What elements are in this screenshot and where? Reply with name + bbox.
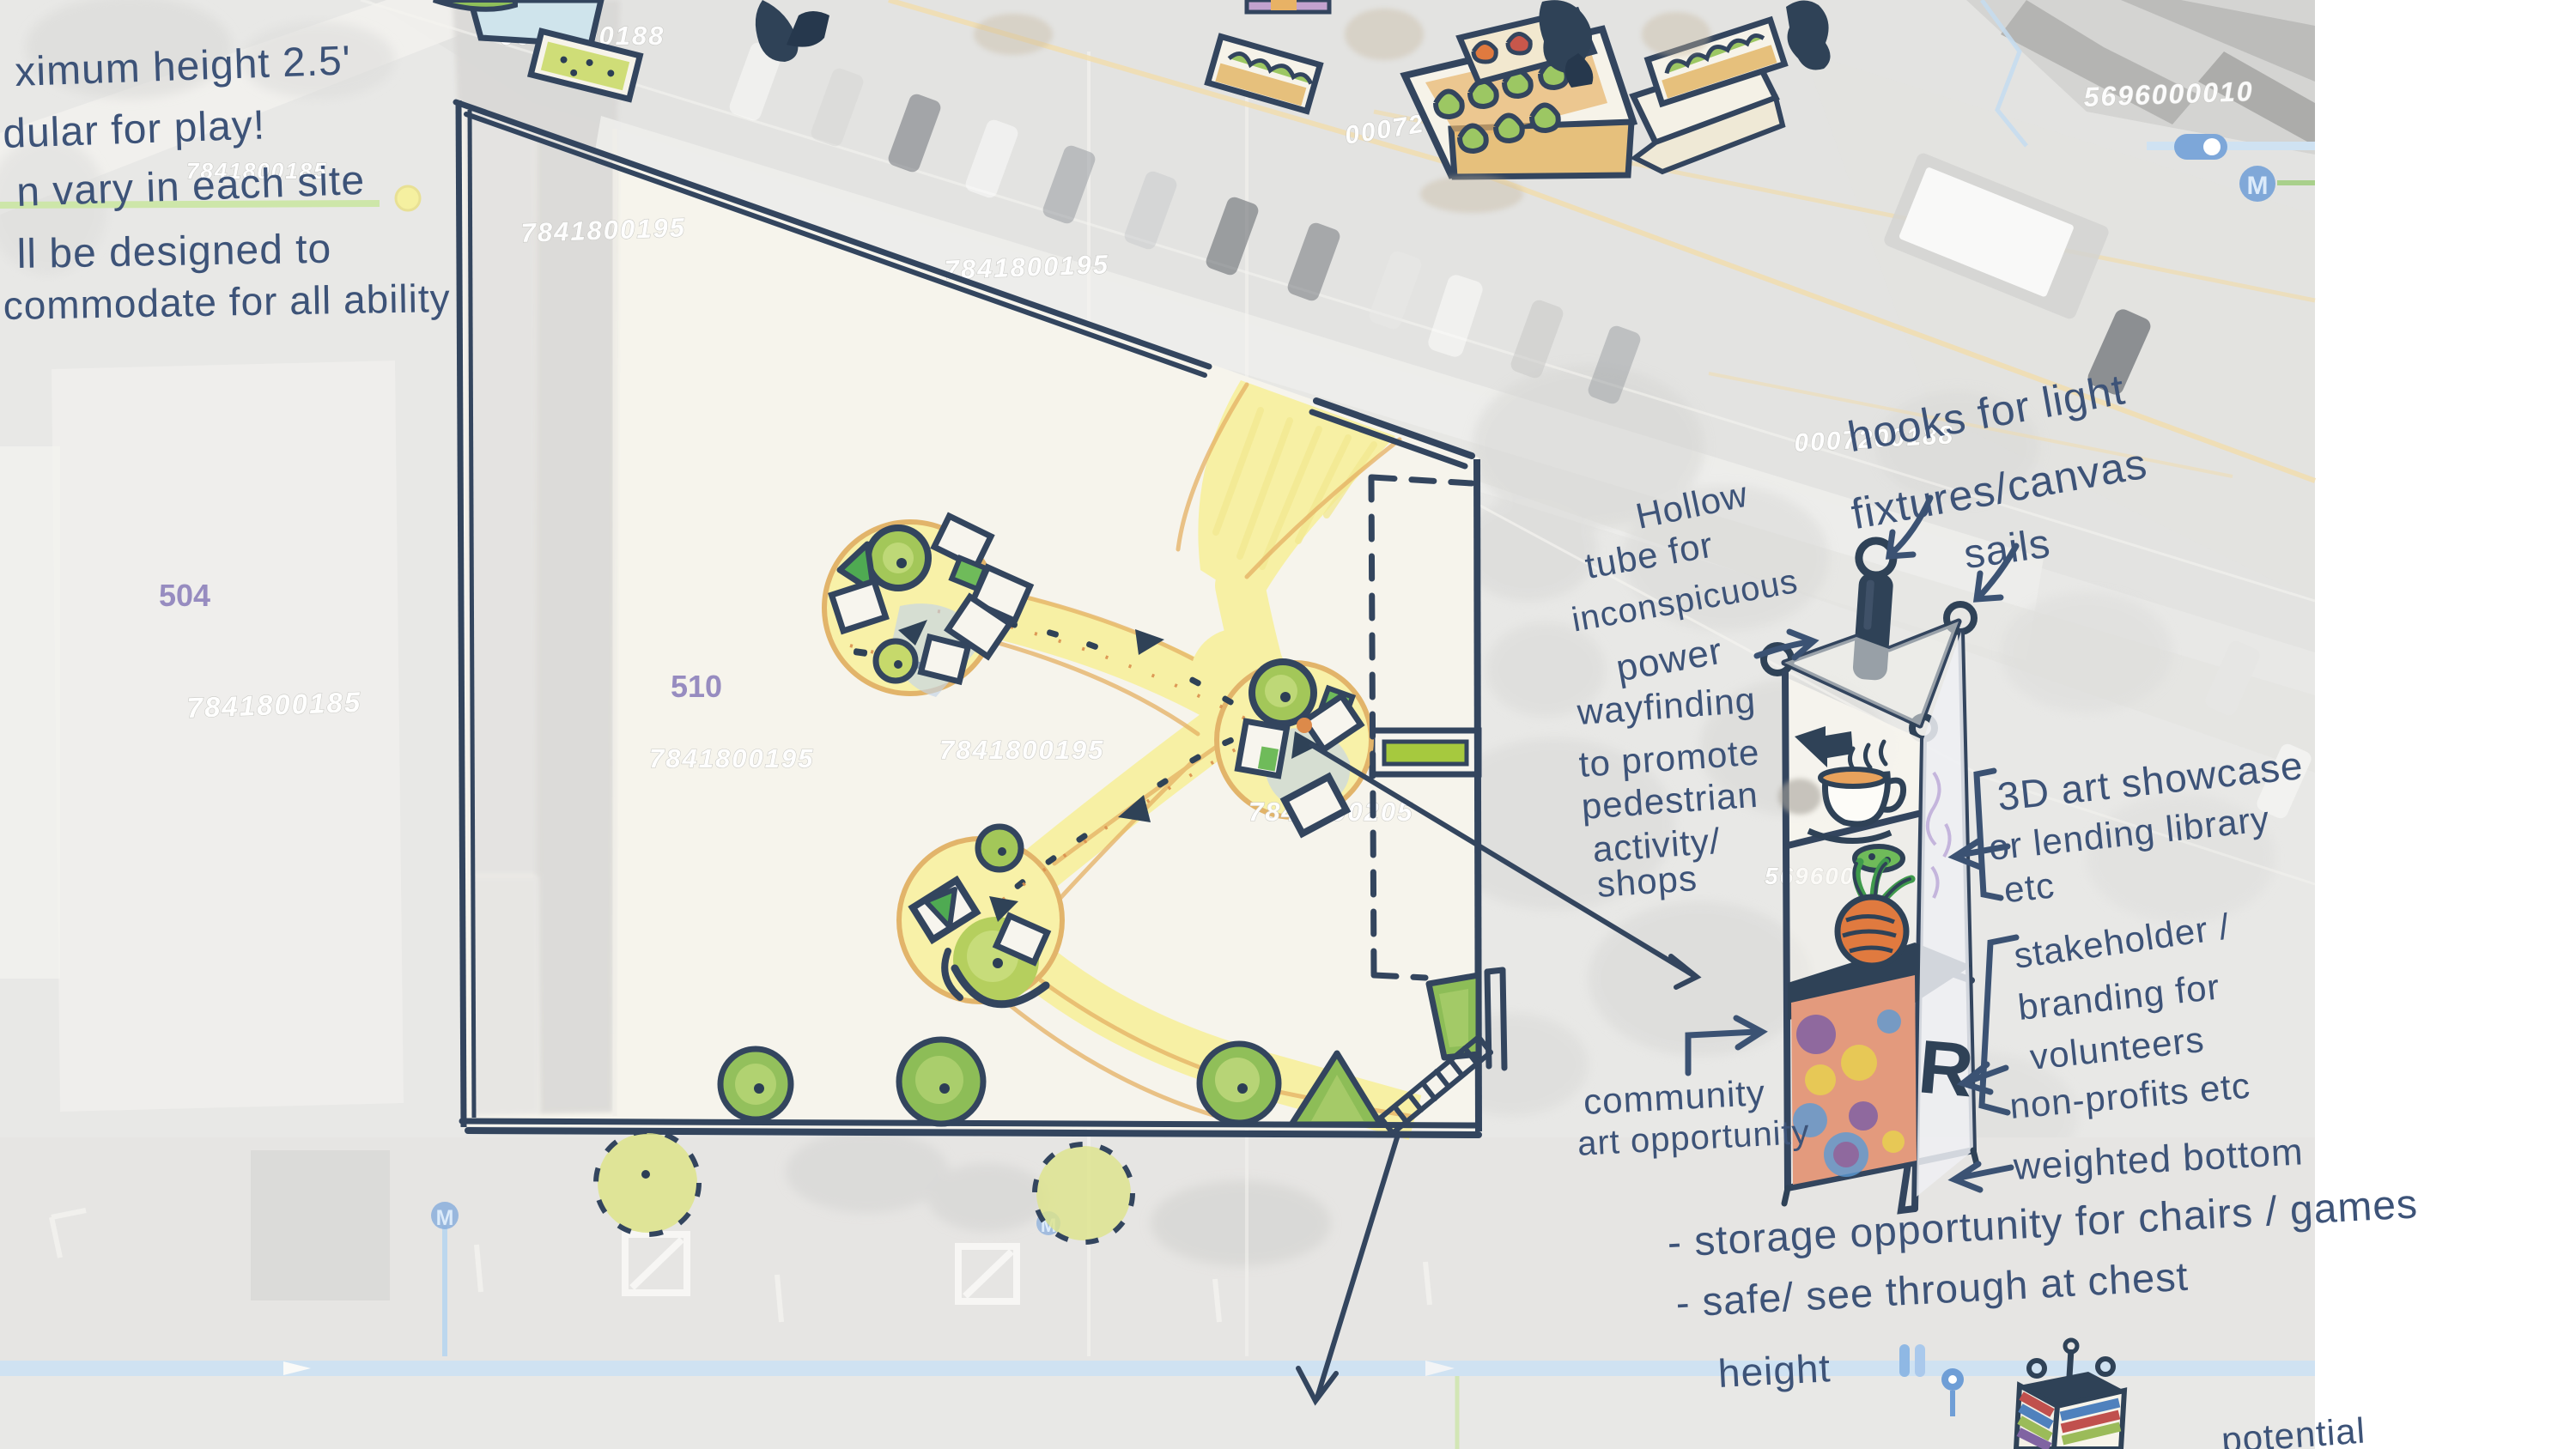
svg-text:7841800195: 7841800195 (939, 735, 1104, 765)
svg-text:ll be designed to: ll be designed to (16, 227, 331, 277)
svg-text:M: M (2247, 172, 2269, 200)
svg-text:7841800195: 7841800195 (649, 743, 814, 773)
svg-text:commodate for all ability: commodate for all ability (3, 276, 451, 328)
svg-text:etc: etc (2002, 864, 2057, 910)
svg-text:7841800195: 7841800195 (520, 212, 687, 248)
svg-text:5696000010: 5696000010 (2083, 76, 2254, 112)
svg-text:R: R (1915, 1023, 1977, 1113)
svg-text:shops: shops (1595, 858, 1698, 905)
svg-text:M: M (436, 1206, 454, 1230)
svg-text:504: 504 (159, 578, 210, 613)
svg-text:7841800185: 7841800185 (186, 686, 362, 724)
svg-text:height: height (1717, 1345, 1832, 1396)
svg-text:dular for play!: dular for play! (2, 102, 265, 157)
svg-text:510: 510 (671, 669, 722, 704)
